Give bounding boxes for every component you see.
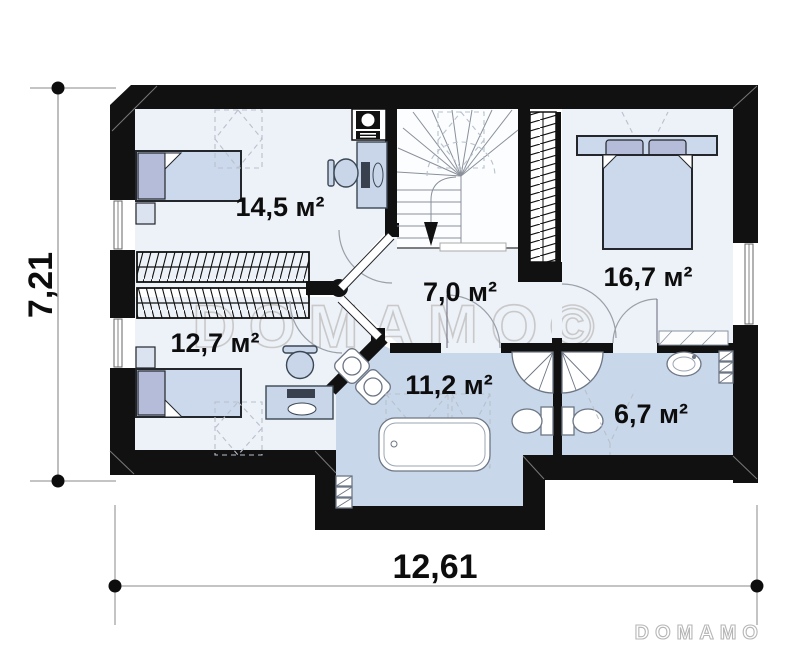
wall-top [131, 85, 758, 109]
flue-circle [362, 114, 375, 127]
radiator [336, 476, 352, 508]
flue-base [356, 131, 380, 139]
double-bed [603, 155, 692, 249]
wall-protrusion-bottom [315, 506, 545, 530]
toilet-bowl [573, 409, 603, 433]
headboard-shelf [577, 136, 717, 155]
opening-bathroom-main [441, 343, 501, 353]
opening-bathroom-small [613, 343, 657, 353]
wall-bathroom-divider [553, 352, 562, 460]
dresser [659, 331, 728, 345]
chair-back [328, 160, 334, 186]
opening-bedroom-right [552, 282, 562, 338]
floor-plan-drawing: DOMAMO© [0, 0, 800, 658]
nightstand [136, 203, 155, 224]
dimension-marker [109, 580, 122, 593]
desk-chair [334, 159, 358, 187]
dimension-marker [52, 82, 65, 95]
floor-stairwell [397, 109, 518, 248]
floor-plan-page: DOMAMO© [0, 0, 800, 658]
wall-left [110, 105, 135, 475]
brand-logo: DOMAMO [635, 622, 764, 644]
toilet-bowl [512, 409, 542, 433]
dimension-marker [751, 580, 764, 593]
toilet-tank [562, 407, 574, 435]
room-label-hall: 7,0 м² [423, 277, 497, 307]
pillow [138, 371, 165, 415]
dimension-label-height: 7,21 [22, 252, 60, 318]
room-label-bedroom-top-left: 14,5 м² [235, 192, 324, 222]
dimension-marker [52, 475, 65, 488]
nightstand [136, 347, 155, 368]
room-label-bedroom-bottom-left: 12,7 м² [170, 328, 259, 358]
wall-bottom-left [110, 450, 336, 475]
bathtub [379, 418, 490, 471]
dimension-label-width: 12,61 [392, 548, 477, 586]
room-label-bathroom-main: 11,2 м² [405, 370, 493, 400]
washbasin-bowl [343, 357, 361, 375]
stair-threshold [440, 243, 506, 251]
washbasin-bowl [364, 378, 382, 396]
toilet-tank [541, 407, 553, 435]
flue-slit [360, 133, 376, 135]
wall-closet-bottom [518, 262, 562, 282]
dimension-height: 7,21 [22, 82, 116, 488]
pillow [138, 153, 165, 199]
monitor [361, 162, 370, 188]
chair-pad [288, 403, 316, 415]
radiator [719, 351, 733, 383]
wall-stair-right [518, 109, 530, 280]
wardrobe-back-wall [556, 112, 561, 262]
washbasin [667, 352, 701, 376]
flue-slit [360, 136, 376, 138]
room-label-bathroom-small: 6,7 м² [614, 399, 688, 429]
room-label-bedroom-right: 16,7 м² [603, 262, 692, 292]
faucet [692, 355, 696, 359]
keyboard [287, 389, 315, 398]
desk-chair [287, 352, 314, 379]
